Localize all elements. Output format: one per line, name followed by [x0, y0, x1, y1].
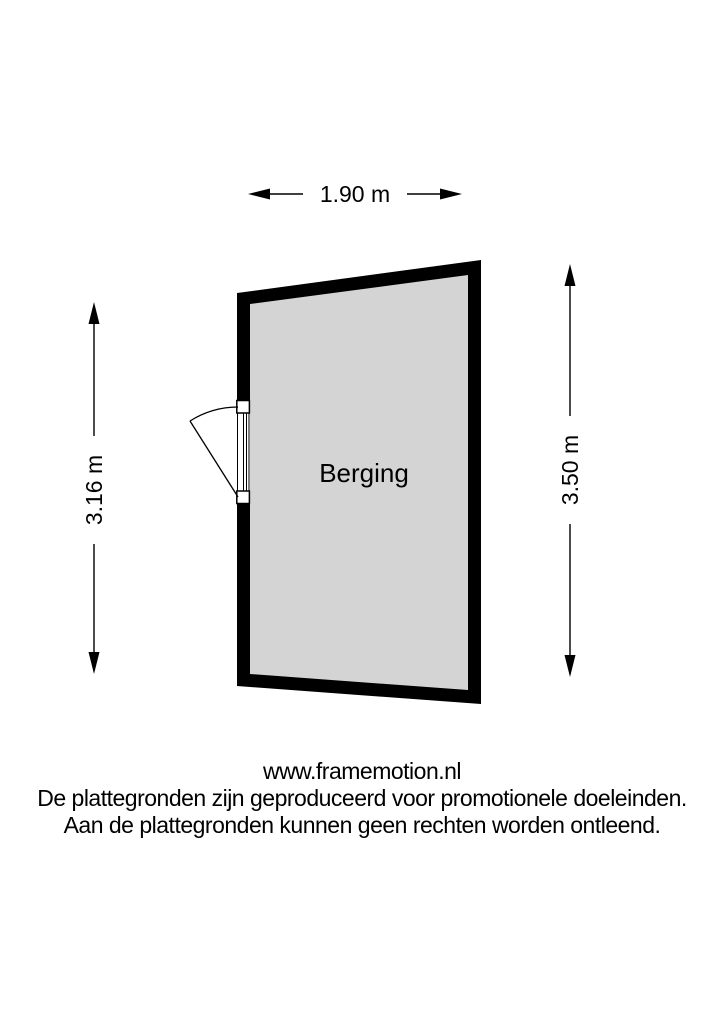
door-frame-top	[237, 401, 250, 414]
door-frame-bottom	[237, 491, 250, 504]
dimension-left-label: 3.16 m	[81, 455, 107, 525]
footer: www.framemotion.nl De plattegronden zijn…	[0, 758, 724, 839]
room-label: Berging	[319, 458, 409, 488]
door	[190, 401, 250, 504]
footer-disclaimer-line-1: De plattegronden zijn geproduceerd voor …	[37, 785, 687, 812]
arrow-up-icon	[89, 302, 100, 324]
dimension-right: 3.50 m	[554, 264, 586, 677]
arrow-left-icon	[248, 189, 270, 200]
arrow-down-icon	[565, 655, 576, 677]
door-swing-leaf-line	[190, 421, 238, 497]
dimension-left: 3.16 m	[78, 302, 110, 674]
dimension-right-label: 3.50 m	[557, 435, 583, 505]
arrow-down-icon	[89, 652, 100, 674]
dimension-top: 1.90 m	[248, 178, 462, 208]
arrow-up-icon	[565, 264, 576, 286]
dimension-top-label: 1.90 m	[320, 181, 390, 207]
floorplan-page: 1.90 m 3.16 m 3.50 m	[0, 0, 724, 1024]
footer-website: www.framemotion.nl	[263, 758, 461, 785]
door-swing-arc	[190, 407, 238, 421]
room-berging: Berging	[190, 260, 481, 704]
footer-disclaimer-line-2: Aan de plattegronden kunnen geen rechten…	[64, 812, 661, 839]
floorplan-canvas: 1.90 m 3.16 m 3.50 m	[0, 0, 724, 1024]
arrow-right-icon	[440, 189, 462, 200]
